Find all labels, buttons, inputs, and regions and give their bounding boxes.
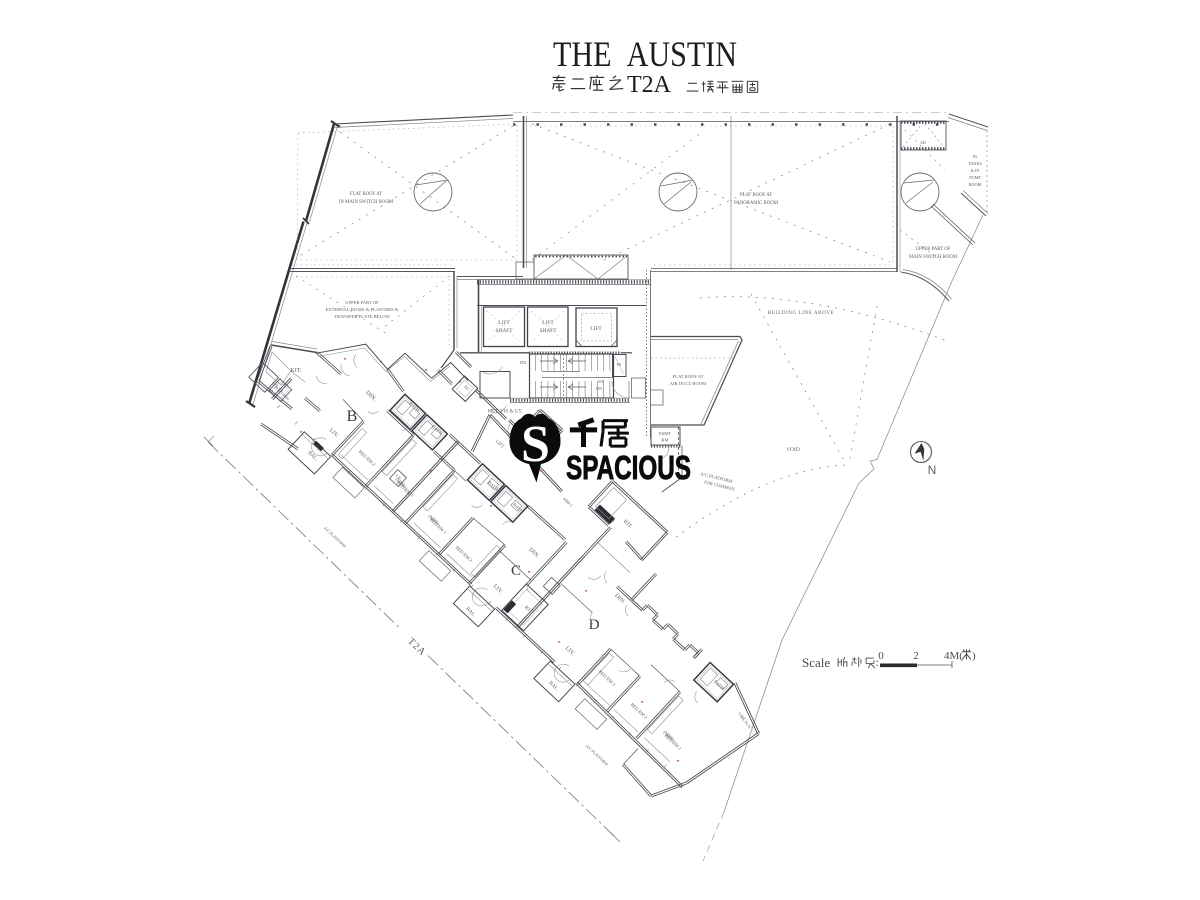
svg-text:ESMT: ESMT — [659, 431, 671, 436]
svg-text:UP: UP — [598, 379, 604, 384]
svg-text:AIR DUCT ROOM: AIR DUCT ROOM — [670, 381, 706, 386]
svg-text:SPACIOUS: SPACIOUS — [566, 449, 691, 486]
svg-text:KIT.: KIT. — [290, 367, 302, 374]
svg-text:FS: FS — [617, 362, 622, 367]
svg-text:LIFT: LIFT — [542, 320, 554, 326]
svg-text:PUMP: PUMP — [969, 175, 981, 180]
svg-text:): ) — [972, 650, 976, 662]
svg-text:IN: IN — [973, 154, 977, 159]
svg-text:VOID: VOID — [786, 447, 800, 453]
svg-text:EXTERNAL KIOSK & PLANTERS &: EXTERNAL KIOSK & PLANTERS & — [325, 307, 399, 312]
svg-text:MET. VIS & GY.: MET. VIS & GY. — [488, 410, 523, 415]
svg-text:FLAT ROOF AT: FLAT ROOF AT — [673, 374, 704, 379]
svg-text:TANKS: TANKS — [968, 161, 982, 166]
svg-text:IN MAIN SWITCH ROOM: IN MAIN SWITCH ROOM — [339, 200, 394, 205]
svg-text:2: 2 — [913, 650, 919, 662]
svg-text:THE AUSTIN: THE AUSTIN — [553, 34, 737, 74]
svg-text:UPPER PART OF: UPPER PART OF — [916, 247, 951, 252]
svg-text:TRANSFER PLATE BELOW: TRANSFER PLATE BELOW — [334, 314, 391, 319]
svg-text:DN: DN — [596, 386, 603, 391]
svg-text:RM: RM — [661, 438, 668, 443]
svg-text:PANORAMIC ROOM: PANORAMIC ROOM — [734, 201, 779, 206]
svg-text:LIFT: LIFT — [590, 326, 602, 332]
svg-text:LIFT: LIFT — [498, 320, 510, 326]
svg-text:BUILDING LINE ABOVE: BUILDING LINE ABOVE — [768, 311, 834, 316]
svg-text:SHAFT: SHAFT — [539, 328, 557, 334]
svg-text:0: 0 — [878, 650, 884, 662]
svg-text:C: C — [511, 563, 521, 579]
svg-text:FLAT ROOF AT: FLAT ROOF AT — [350, 192, 382, 197]
svg-text:DN: DN — [520, 360, 527, 365]
svg-text:4M(: 4M( — [944, 650, 963, 662]
svg-text:N: N — [928, 463, 937, 477]
svg-text:S: S — [521, 416, 550, 473]
svg-text:Scale: Scale — [802, 655, 830, 670]
svg-text:& IN: & IN — [971, 168, 980, 173]
svg-text:SHAFT: SHAFT — [495, 328, 513, 334]
svg-text:UPPER PART OF: UPPER PART OF — [345, 300, 379, 305]
svg-text:ROOM: ROOM — [969, 182, 982, 187]
svg-text:FLAT ROOF AT: FLAT ROOF AT — [740, 193, 772, 198]
svg-text:MAIN SWITCH ROOM: MAIN SWITCH ROOM — [909, 255, 958, 260]
svg-text:SD: SD — [920, 140, 925, 145]
svg-text:B: B — [347, 408, 358, 425]
svg-text:T2A: T2A — [627, 72, 672, 98]
